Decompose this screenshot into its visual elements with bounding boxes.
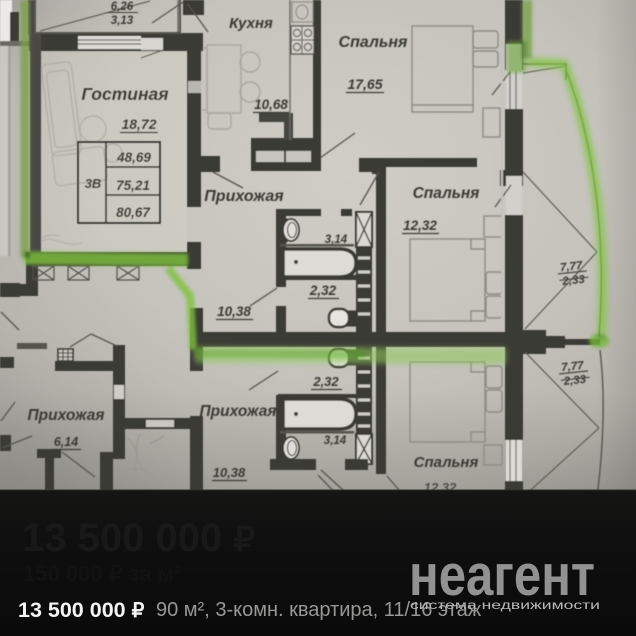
svg-text:6,26: 6,26 bbox=[111, 1, 134, 13]
svg-text:Спальня: Спальня bbox=[413, 185, 480, 202]
svg-text:17,65: 17,65 bbox=[347, 76, 382, 92]
svg-text:10,68: 10,68 bbox=[254, 97, 288, 112]
svg-text:2,33: 2,33 bbox=[561, 274, 586, 288]
svg-text:6,14: 6,14 bbox=[54, 435, 78, 449]
svg-text:Прихожая: Прихожая bbox=[204, 188, 284, 205]
svg-text:неагент: неагент bbox=[409, 543, 595, 608]
svg-text:Спальня: Спальня bbox=[414, 454, 479, 471]
svg-text:Гостиная: Гостиная bbox=[81, 84, 168, 104]
svg-text:48,69: 48,69 bbox=[116, 150, 151, 165]
svg-text:12,32: 12,32 bbox=[403, 218, 437, 233]
svg-text:3,13: 3,13 bbox=[111, 15, 134, 27]
svg-text:Прихожая: Прихожая bbox=[28, 407, 105, 424]
svg-text:3В: 3В bbox=[85, 176, 102, 191]
svg-text:80,67: 80,67 bbox=[116, 205, 151, 220]
svg-text:Кухня: Кухня bbox=[229, 15, 273, 32]
svg-text:13 500 000 ₽: 13 500 000 ₽ bbox=[22, 516, 255, 560]
svg-text:10,38: 10,38 bbox=[213, 465, 246, 480]
svg-text:2,32: 2,32 bbox=[312, 374, 339, 389]
svg-text:150 000 ₽ за м²: 150 000 ₽ за м² bbox=[23, 561, 181, 586]
svg-text:75,21: 75,21 bbox=[116, 178, 150, 193]
svg-text:Прихожая: Прихожая bbox=[200, 403, 277, 420]
svg-text:Спальня: Спальня bbox=[339, 34, 409, 51]
svg-text:2,32: 2,32 bbox=[309, 283, 337, 298]
svg-text:3,14: 3,14 bbox=[325, 234, 348, 246]
svg-text:система недвижимости: система недвижимости bbox=[410, 600, 600, 612]
svg-text:13 500 000 ₽: 13 500 000 ₽ bbox=[18, 598, 145, 622]
svg-text:10,38: 10,38 bbox=[217, 304, 251, 319]
svg-text:2,33: 2,33 bbox=[562, 374, 587, 388]
svg-text:3,14: 3,14 bbox=[324, 435, 347, 447]
svg-text:18,72: 18,72 bbox=[121, 116, 156, 132]
